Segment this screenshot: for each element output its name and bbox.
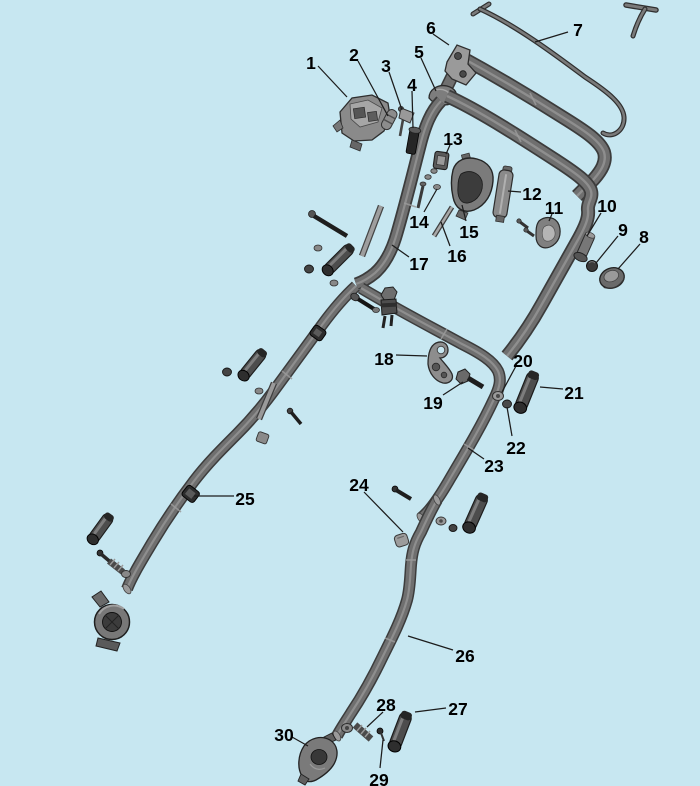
clamp-part-13 (433, 151, 449, 170)
part-label-18: 18 (374, 349, 394, 369)
part-label-22: 22 (506, 438, 526, 458)
part-label-7: 7 (573, 20, 583, 40)
part-label-28: 28 (376, 695, 396, 715)
part-label-4: 4 (407, 75, 417, 95)
part-label-11: 11 (545, 198, 564, 218)
part-label-2: 2 (349, 45, 359, 65)
part-label-1: 1 (306, 53, 316, 73)
part-label-9: 9 (618, 220, 628, 240)
nut-part-22 (503, 400, 512, 408)
part-label-21: 21 (564, 383, 584, 403)
part-label-12: 12 (522, 184, 542, 204)
part-label-10: 10 (597, 196, 617, 216)
part-label-17: 17 (409, 254, 428, 274)
part-label-16: 16 (447, 246, 467, 266)
part-label-29: 29 (369, 770, 389, 786)
part-label-15: 15 (459, 222, 479, 242)
parts-diagram-page: 1234567891011121314151617181920212223242… (0, 0, 700, 786)
part-label-14: 14 (409, 212, 429, 232)
part-label-20: 20 (513, 351, 533, 371)
part-label-19: 19 (423, 393, 443, 413)
part-label-30: 30 (274, 725, 294, 745)
part-label-13: 13 (443, 129, 463, 149)
part-label-25: 25 (235, 489, 255, 509)
part-label-23: 23 (484, 456, 504, 476)
washer-part-20 (493, 392, 504, 401)
exploded-parts-diagram: 1234567891011121314151617181920212223242… (0, 0, 700, 786)
part-label-6: 6 (426, 18, 436, 38)
part-label-26: 26 (455, 646, 475, 666)
part-label-24: 24 (349, 475, 369, 495)
nut-part-9 (587, 261, 598, 272)
part-label-8: 8 (639, 227, 649, 247)
part-label-27: 27 (448, 699, 467, 719)
part-label-5: 5 (414, 42, 424, 62)
part-label-3: 3 (381, 56, 391, 76)
